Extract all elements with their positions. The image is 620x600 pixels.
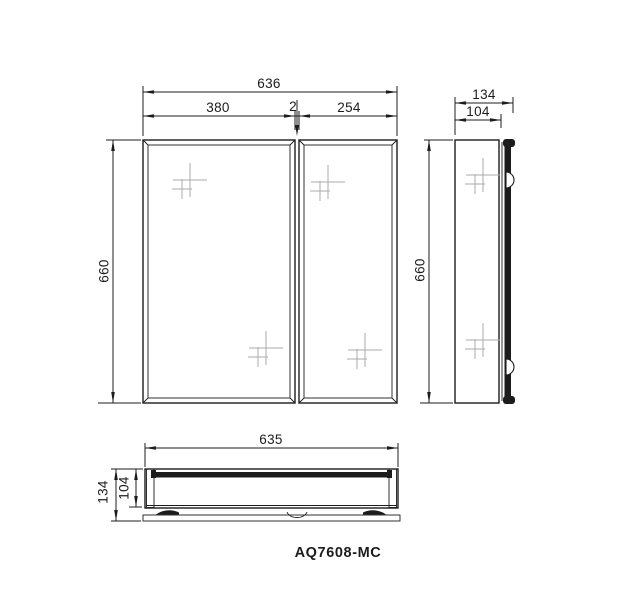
dim-text-plan-width: 635 [259, 432, 282, 447]
dim-text-front-left-door-width: 380 [206, 100, 229, 115]
front-view: 636 380 2 254 660 [97, 76, 398, 403]
dim-plan-width: 635 [145, 432, 398, 467]
sparkle-icon [310, 165, 345, 201]
plan-view: 635 134 104 [96, 432, 401, 521]
side-view: 134 104 660 [413, 87, 516, 404]
dim-text-side-body-depth: 104 [466, 104, 490, 119]
dim-text-front-right-door-width: 254 [337, 100, 361, 115]
dim-front-door-widths: 380 2 254 [143, 99, 397, 136]
plan-mounting-rail [143, 515, 400, 521]
front-right-door [299, 140, 397, 403]
side-cabinet-body [455, 140, 499, 403]
mirror-cabinet-drawing: 636 380 2 254 660 [0, 0, 620, 600]
plan-mirror-strip [154, 472, 389, 478]
dim-plan-body-depth: 104 [117, 469, 143, 507]
sparkle-icon [465, 158, 500, 194]
dim-text-front-overall-width: 636 [257, 76, 280, 91]
plan-hinge-details [156, 510, 386, 517]
dim-text-plan-body-depth: 104 [117, 476, 132, 500]
dim-front-height: 660 [97, 140, 142, 403]
dim-side-body-depth: 104 [455, 104, 501, 128]
sparkle-icon [465, 323, 500, 359]
dim-text-front-door-gap: 2 [289, 99, 297, 114]
side-mirror-door-profile [503, 139, 515, 404]
sparkle-icon [347, 333, 382, 369]
front-left-door [143, 140, 295, 403]
product-code-label: AQ7608-MC [295, 545, 382, 561]
technical-drawing-sheet: 636 380 2 254 660 [0, 0, 620, 600]
dim-text-side-overall-depth: 134 [472, 87, 496, 102]
dim-side-height: 660 [413, 140, 454, 403]
hinge-bump-top [506, 172, 514, 188]
hinge-bump-bottom [506, 359, 514, 375]
sparkle-icon [248, 331, 283, 367]
dim-text-side-height: 660 [413, 258, 428, 281]
dim-text-front-height: 660 [97, 259, 112, 282]
sparkle-icon [172, 163, 207, 199]
dim-text-plan-overall-depth: 134 [96, 480, 111, 504]
